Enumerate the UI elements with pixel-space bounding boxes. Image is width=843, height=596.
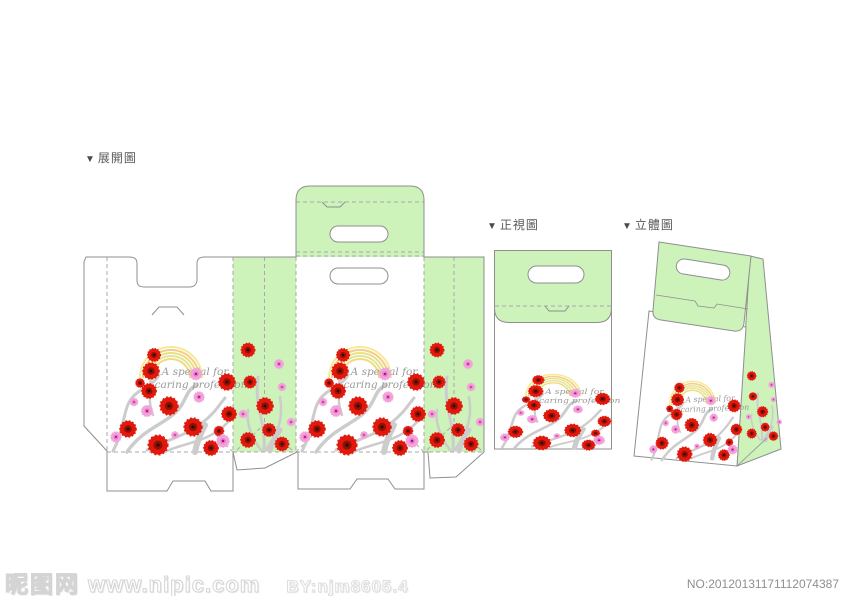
label-front-text: 正視圖 (500, 218, 539, 232)
front-view-diagram (495, 251, 621, 451)
bag-flap (653, 242, 751, 331)
watermark-site-url: www.nipic.com (88, 572, 260, 596)
label-perspective-view: ▼立體圖 (622, 216, 674, 233)
label-unfold-view: ▼展開圖 (85, 149, 137, 166)
perspective-view-diagram (634, 242, 782, 466)
watermark-author: BY:njm8605.4 (286, 577, 408, 596)
label-perspective-text: 立體圖 (635, 218, 674, 232)
top-flap (296, 186, 424, 257)
canvas: A special for caring profession (0, 0, 843, 596)
triangle-bullet-icon: ▼ (85, 154, 96, 165)
packaging-dieline-svg: A special for caring profession (0, 0, 843, 596)
triangle-bullet-icon: ▼ (622, 221, 633, 232)
unfold-diagram (84, 186, 484, 491)
triangle-bullet-icon: ▼ (487, 221, 498, 232)
watermark-serial-number: NO:20120131171112074387 (687, 577, 839, 591)
front-view-flap (495, 251, 612, 323)
watermark: 昵图网 www.nipic.com BY:njm8605.4 (5, 565, 409, 596)
flap-handle-hole (330, 226, 388, 242)
watermark-site-name: 昵图网 (5, 565, 80, 596)
panel-handle-hole (330, 268, 388, 284)
label-unfold-text: 展開圖 (98, 151, 137, 165)
front-view-handle-hole (528, 266, 584, 283)
label-front-view: ▼正視圖 (487, 216, 539, 233)
